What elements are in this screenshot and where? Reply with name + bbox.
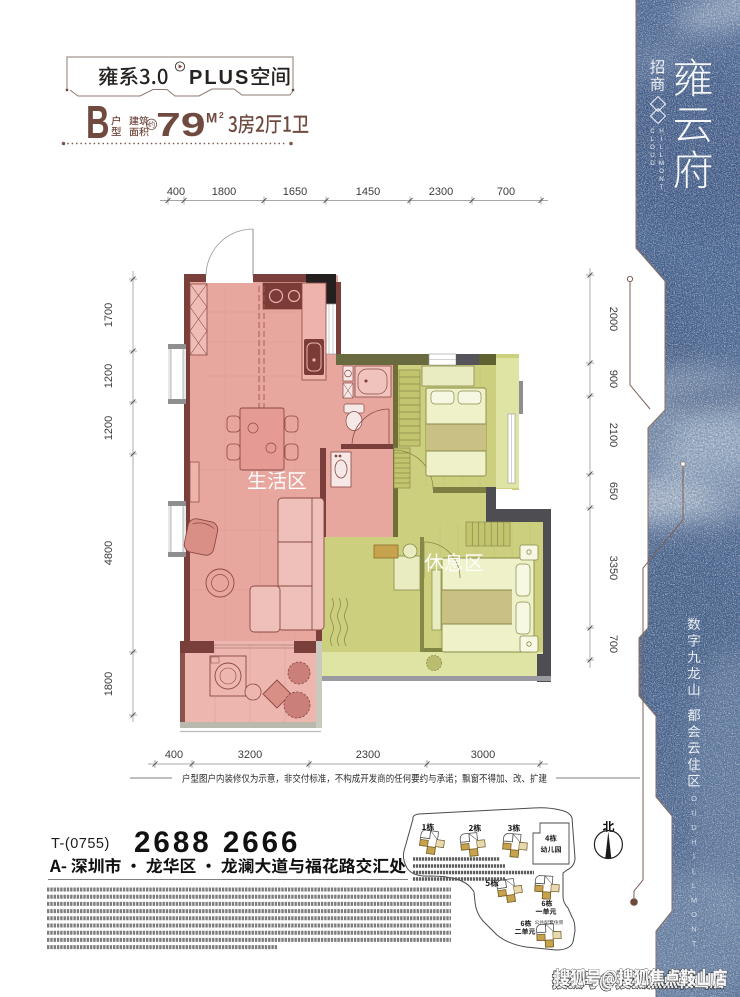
svg-text:L: L xyxy=(692,780,696,789)
svg-text:1200: 1200 xyxy=(103,364,115,388)
svg-text:L: L xyxy=(692,867,696,876)
svg-text:L: L xyxy=(660,144,664,151)
svg-text:2100: 2100 xyxy=(607,423,619,447)
svg-text:B: B xyxy=(86,96,110,148)
svg-text:650: 650 xyxy=(607,482,619,500)
svg-text:2688 2666: 2688 2666 xyxy=(134,826,300,859)
svg-text:C: C xyxy=(691,765,697,774)
svg-text:1700: 1700 xyxy=(103,303,115,327)
svg-text:O: O xyxy=(659,168,664,175)
svg-text:1200: 1200 xyxy=(103,416,115,440)
svg-text:U: U xyxy=(650,152,654,159)
svg-text:79: 79 xyxy=(156,106,206,143)
svg-text:T: T xyxy=(692,939,697,948)
svg-text:I: I xyxy=(661,136,663,143)
svg-text:L: L xyxy=(692,881,696,890)
svg-text:2: 2 xyxy=(219,110,224,120)
svg-text:N: N xyxy=(691,925,696,934)
svg-text:400: 400 xyxy=(167,186,185,198)
svg-text:700: 700 xyxy=(497,186,515,198)
svg-text:1800: 1800 xyxy=(212,186,236,198)
svg-text:2000: 2000 xyxy=(607,307,619,331)
svg-text:I: I xyxy=(693,852,695,861)
svg-text:T-(0755): T-(0755) xyxy=(51,836,110,852)
svg-text:2300: 2300 xyxy=(429,186,453,198)
svg-text:PLUS: PLUS xyxy=(189,67,250,89)
svg-text:400: 400 xyxy=(165,749,183,761)
svg-text:O: O xyxy=(691,910,697,919)
svg-text:L: L xyxy=(651,136,655,143)
svg-text:D: D xyxy=(691,823,697,832)
svg-text:L: L xyxy=(660,152,664,159)
svg-text:T: T xyxy=(660,184,664,191)
svg-text:1450: 1450 xyxy=(356,186,380,198)
svg-text:H: H xyxy=(659,128,663,135)
svg-text:3200: 3200 xyxy=(238,749,262,761)
svg-text:M: M xyxy=(206,111,217,126)
svg-text:2300: 2300 xyxy=(356,749,380,761)
svg-text:M: M xyxy=(659,160,664,167)
svg-text:C: C xyxy=(650,128,655,135)
svg-text:M: M xyxy=(691,896,697,905)
svg-text:O: O xyxy=(691,794,697,803)
svg-text:1800: 1800 xyxy=(103,672,115,696)
svg-text:H: H xyxy=(691,838,696,847)
svg-text:900: 900 xyxy=(607,370,619,388)
svg-text:O: O xyxy=(650,144,655,151)
svg-text:N: N xyxy=(659,176,663,183)
svg-text:3000: 3000 xyxy=(471,749,495,761)
svg-text:700: 700 xyxy=(607,635,619,653)
svg-text:D: D xyxy=(650,160,655,167)
svg-text:1650: 1650 xyxy=(283,186,307,198)
svg-text:4800: 4800 xyxy=(103,541,115,565)
svg-text:3350: 3350 xyxy=(607,556,619,580)
svg-text:U: U xyxy=(691,809,696,818)
